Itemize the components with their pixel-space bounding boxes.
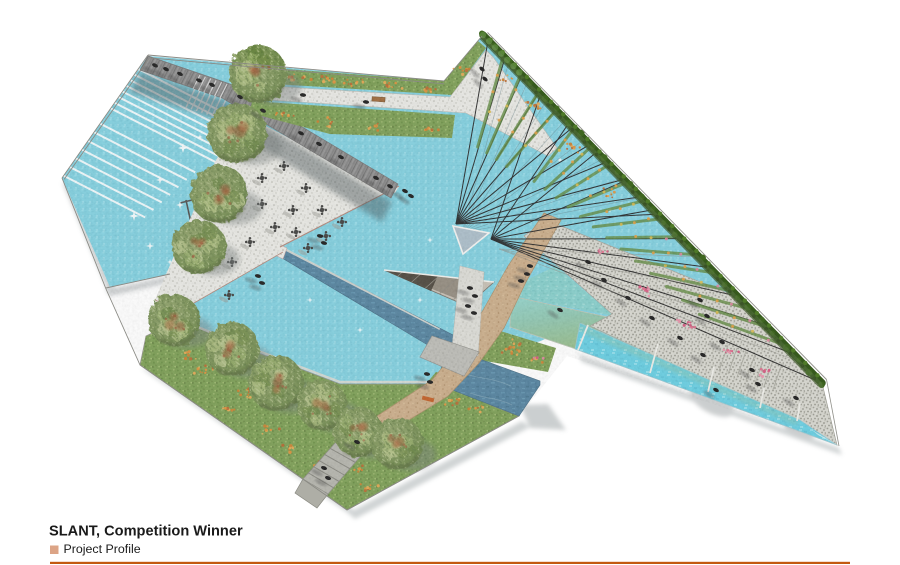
svg-text:SLANT, Competition Winner: SLANT, Competition Winner: [49, 524, 243, 540]
svg-text:Project Profile: Project Profile: [64, 542, 141, 556]
